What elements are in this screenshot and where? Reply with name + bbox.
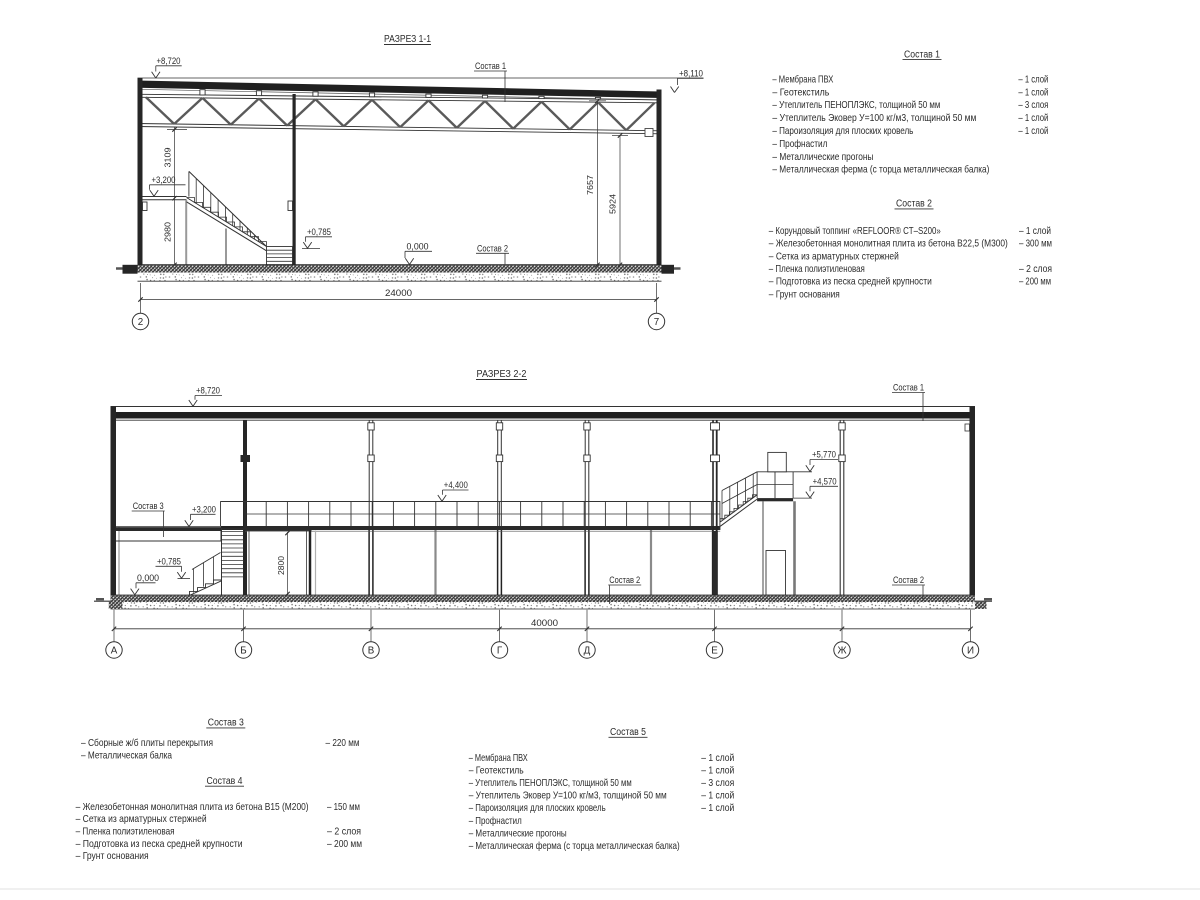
svg-text:+4,400: +4,400 bbox=[444, 480, 468, 490]
svg-text:– Сетка из арматурных стержней: – Сетка из арматурных стержней bbox=[76, 814, 207, 825]
svg-text:– Утеплитель ПЕНОПЛЭКС, толщин: – Утеплитель ПЕНОПЛЭКС, толщиной 50 мм bbox=[772, 100, 940, 111]
svg-text:Е: Е bbox=[711, 646, 718, 657]
svg-text:– 2 слоя: – 2 слоя bbox=[327, 827, 361, 838]
svg-text:– Геотекстиль: – Геотекстиль bbox=[469, 766, 524, 777]
svg-text:– 300 мм: – 300 мм bbox=[1019, 239, 1052, 250]
svg-text:+4,570: +4,570 bbox=[813, 476, 837, 486]
svg-text:– 3 слоя: – 3 слоя bbox=[1018, 100, 1048, 111]
svg-text:– 1 слой: – 1 слой bbox=[1018, 87, 1048, 98]
svg-text:Состав 1: Состав 1 bbox=[475, 61, 506, 71]
svg-text:7657: 7657 bbox=[585, 175, 595, 195]
svg-text:– 2 слоя: – 2 слоя bbox=[1019, 264, 1052, 275]
svg-text:+0,785: +0,785 bbox=[307, 227, 331, 237]
svg-text:– 1 слой: – 1 слой bbox=[1018, 113, 1048, 124]
svg-text:+8,720: +8,720 bbox=[196, 386, 220, 396]
svg-text:– Пленка полиэтиленовая: – Пленка полиэтиленовая bbox=[76, 827, 175, 838]
svg-text:– 200 мм: – 200 мм bbox=[1019, 277, 1051, 288]
svg-text:3109: 3109 bbox=[163, 147, 173, 167]
svg-text:– Корундовый топпинг «REFLOOR®: – Корундовый топпинг «REFLOOR® CT–S200» bbox=[769, 226, 941, 237]
svg-text:В: В bbox=[368, 646, 375, 657]
svg-text:Состав 3: Состав 3 bbox=[208, 718, 244, 729]
svg-text:2800: 2800 bbox=[277, 556, 286, 575]
svg-text:– Металлическая ферма (с торца: – Металлическая ферма (с торца металличе… bbox=[469, 840, 680, 852]
svg-text:Состав 1: Состав 1 bbox=[904, 49, 940, 60]
svg-text:– Мембрана ПВХ: – Мембрана ПВХ bbox=[469, 752, 528, 764]
svg-text:– Металлическая ферма (с торца: – Металлическая ферма (с торца металличе… bbox=[772, 164, 989, 176]
svg-text:– 220 мм: – 220 мм bbox=[326, 738, 360, 749]
svg-text:– Профнастил: – Профнастил bbox=[469, 815, 522, 827]
svg-text:Состав 2: Состав 2 bbox=[893, 575, 924, 585]
svg-text:Состав 2: Состав 2 bbox=[477, 243, 508, 253]
svg-text:Г: Г bbox=[497, 646, 503, 657]
svg-text:24000: 24000 bbox=[385, 288, 412, 298]
svg-text:– Сборные ж/б плиты перекрытия: – Сборные ж/б плиты перекрытия bbox=[81, 737, 213, 749]
svg-text:Б: Б bbox=[240, 646, 246, 657]
svg-text:– 1 слой: – 1 слой bbox=[701, 803, 734, 814]
svg-text:– Профнастил: – Профнастил bbox=[772, 138, 827, 150]
svg-text:Состав 4: Состав 4 bbox=[207, 776, 243, 787]
svg-text:40000: 40000 bbox=[531, 618, 558, 628]
svg-text:0,000: 0,000 bbox=[407, 241, 429, 251]
svg-text:+5,770: +5,770 bbox=[812, 450, 836, 460]
svg-text:Ж: Ж bbox=[837, 646, 846, 657]
svg-text:– Подготовка из песка средней: – Подготовка из песка средней крупности bbox=[76, 839, 243, 850]
svg-text:– Утеплитель Эковер У=100 кг/м: – Утеплитель Эковер У=100 кг/м3, толщино… bbox=[772, 113, 976, 124]
svg-text:– Утеплитель Эковер У=100 кг/м: – Утеплитель Эковер У=100 кг/м3, толщино… bbox=[469, 791, 667, 802]
svg-text:– Грунт основания: – Грунт основания bbox=[769, 289, 840, 300]
svg-text:– Металлические прогоны: – Металлические прогоны bbox=[772, 152, 873, 163]
svg-text:– 3 слоя: – 3 слоя bbox=[701, 778, 734, 789]
svg-text:– 1 слой: – 1 слой bbox=[1019, 226, 1051, 237]
svg-text:– Утеплитель ПЕНОПЛЭКС, толщин: – Утеплитель ПЕНОПЛЭКС, толщиной 50 мм bbox=[469, 778, 632, 789]
svg-text:7: 7 bbox=[654, 317, 659, 328]
svg-text:– 1 слой: – 1 слой bbox=[1018, 74, 1048, 85]
svg-text:+8,720: +8,720 bbox=[157, 56, 181, 66]
svg-text:РАЗРЕЗ 1-1: РАЗРЕЗ 1-1 bbox=[384, 34, 431, 45]
svg-text:И: И bbox=[967, 646, 974, 657]
svg-text:– Подготовка из песка средней: – Подготовка из песка средней крупности bbox=[769, 277, 932, 288]
svg-text:– 1 слой: – 1 слой bbox=[701, 766, 734, 777]
svg-text:– Пароизоляция для плоских кро: – Пароизоляция для плоских кровель bbox=[772, 126, 913, 137]
svg-text:– Металлические прогоны: – Металлические прогоны bbox=[469, 828, 567, 839]
svg-text:+3,200: +3,200 bbox=[192, 504, 216, 514]
svg-text:– Геотекстиль: – Геотекстиль bbox=[772, 87, 829, 98]
svg-text:– Грунт основания: – Грунт основания bbox=[76, 851, 149, 862]
svg-text:– 200 мм: – 200 мм bbox=[327, 839, 362, 850]
svg-text:+0,785: +0,785 bbox=[157, 556, 181, 566]
svg-text:2980: 2980 bbox=[163, 222, 173, 242]
svg-text:2: 2 bbox=[138, 317, 143, 328]
svg-text:0,000: 0,000 bbox=[137, 573, 159, 583]
svg-text:Состав 1: Состав 1 bbox=[893, 383, 924, 393]
svg-text:+3,200: +3,200 bbox=[152, 175, 176, 185]
svg-text:5924: 5924 bbox=[608, 194, 618, 214]
svg-text:Состав 5: Состав 5 bbox=[610, 727, 646, 738]
svg-text:– Металлическая балка: – Металлическая балка bbox=[81, 750, 172, 762]
svg-text:– Мембрана ПВХ: – Мембрана ПВХ bbox=[772, 73, 833, 85]
svg-text:– 150 мм: – 150 мм bbox=[327, 802, 360, 813]
svg-text:Состав 3: Состав 3 bbox=[133, 501, 164, 511]
svg-text:– Пленка полиэтиленовая: – Пленка полиэтиленовая bbox=[769, 264, 865, 275]
svg-text:Д: Д bbox=[584, 646, 591, 657]
svg-text:+8,110: +8,110 bbox=[679, 69, 703, 79]
svg-text:– Железобетонная монолитная п: – Железобетонная монолитная плита из бет… bbox=[76, 801, 309, 813]
svg-text:А: А bbox=[111, 646, 118, 657]
svg-text:– 1 слой: – 1 слой bbox=[701, 791, 734, 802]
svg-text:РАЗРЕЗ 2-2: РАЗРЕЗ 2-2 bbox=[477, 369, 527, 380]
svg-text:– 1 слой: – 1 слой bbox=[701, 753, 734, 764]
svg-text:– Пароизоляция для плоских кро: – Пароизоляция для плоских кровель bbox=[469, 803, 606, 814]
svg-text:– Железобетонная монолитная п: – Железобетонная монолитная плита из бет… bbox=[769, 238, 1008, 250]
svg-text:– Сетка из арматурных стержней: – Сетка из арматурных стержней bbox=[769, 251, 899, 262]
svg-text:Состав 2: Состав 2 bbox=[609, 575, 640, 585]
svg-text:– 1 слой: – 1 слой bbox=[1018, 126, 1048, 137]
svg-text:Состав 2: Состав 2 bbox=[896, 199, 932, 210]
